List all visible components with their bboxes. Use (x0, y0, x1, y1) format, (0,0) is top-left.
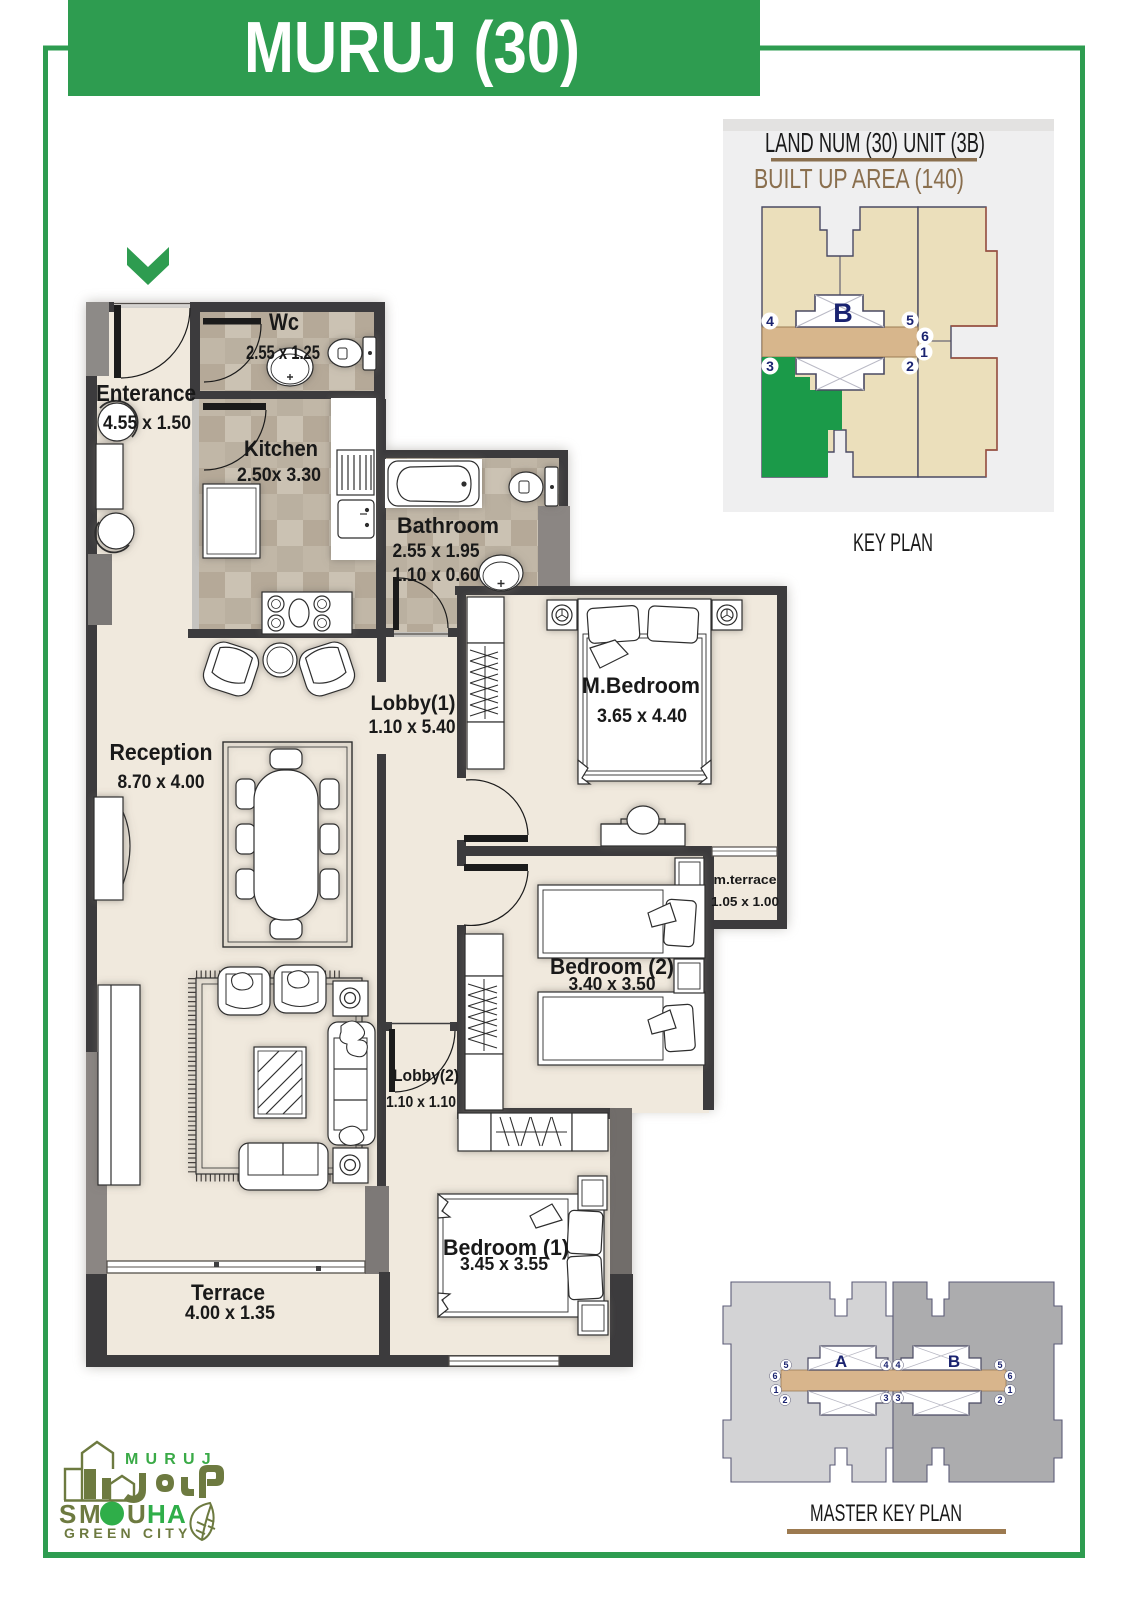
svg-text:6: 6 (772, 1371, 777, 1381)
svg-text:BUILT UP AREA (140): BUILT UP AREA (140) (754, 163, 964, 194)
svg-text:3: 3 (766, 358, 774, 374)
svg-text:Enterance: Enterance (96, 380, 196, 406)
svg-text:5: 5 (783, 1360, 788, 1370)
svg-text:1.10 x 5.40: 1.10 x 5.40 (369, 717, 456, 738)
svg-text:Lobby(2): Lobby(2) (393, 1066, 459, 1085)
svg-text:1.10 x 1.10: 1.10 x 1.10 (386, 1094, 456, 1111)
svg-text:1: 1 (773, 1385, 778, 1395)
svg-text:8.70 x 4.00: 8.70 x 4.00 (118, 772, 205, 793)
svg-text:Reception: Reception (110, 739, 213, 765)
svg-text:m.terrace: m.terrace (714, 872, 777, 887)
svg-text:MASTER KEY PLAN: MASTER KEY PLAN (810, 1500, 962, 1527)
svg-text:1: 1 (1007, 1385, 1012, 1395)
svg-text:MURUJ (30): MURUJ (30) (244, 8, 580, 88)
svg-text:1.05 x 1.00: 1.05 x 1.00 (711, 894, 779, 909)
svg-text:2.55 x 1.95: 2.55 x 1.95 (393, 541, 480, 562)
svg-text:1: 1 (920, 344, 928, 360)
svg-text:Bathroom: Bathroom (397, 513, 499, 538)
svg-text:3.65 x 4.40: 3.65 x 4.40 (597, 706, 687, 727)
svg-text:2: 2 (997, 1395, 1002, 1405)
svg-text:5: 5 (997, 1360, 1002, 1370)
svg-text:LAND NUM (30) UNIT (3B): LAND NUM (30) UNIT (3B) (765, 127, 985, 158)
svg-text:3.40 x 3.50: 3.40 x 3.50 (569, 974, 656, 994)
svg-text:KEY PLAN: KEY PLAN (853, 529, 933, 557)
svg-text:4.55 x 1.50: 4.55 x 1.50 (103, 413, 191, 434)
svg-text:5: 5 (906, 312, 914, 328)
svg-text:3.45 x 3.55: 3.45 x 3.55 (460, 1254, 548, 1274)
svg-text:4: 4 (766, 313, 774, 329)
svg-text:2.55 x 1.25: 2.55 x 1.25 (246, 343, 320, 364)
svg-text:Lobby(1): Lobby(1) (371, 692, 456, 715)
svg-text:4: 4 (883, 1360, 888, 1370)
svg-text:GREEN CITY: GREEN CITY (64, 1525, 192, 1541)
svg-text:B: B (948, 1352, 960, 1371)
svg-text:3: 3 (883, 1393, 888, 1403)
svg-text:4.00 x 1.35: 4.00 x 1.35 (185, 1303, 275, 1324)
svg-text:4: 4 (895, 1360, 900, 1370)
svg-text:2.50x 3.30: 2.50x 3.30 (237, 465, 321, 486)
svg-text:B: B (833, 298, 853, 328)
svg-text:Kitchen: Kitchen (244, 436, 318, 461)
svg-text:M.Bedroom: M.Bedroom (582, 673, 700, 698)
svg-text:3: 3 (895, 1393, 900, 1403)
svg-text:1.10 x 0.60: 1.10 x 0.60 (393, 565, 480, 586)
svg-text:6: 6 (1007, 1371, 1012, 1381)
svg-text:2: 2 (782, 1395, 787, 1405)
svg-text:Wc: Wc (269, 309, 299, 336)
svg-text:Terrace: Terrace (191, 1280, 265, 1305)
svg-text:MURUJ: MURUJ (125, 1451, 218, 1468)
svg-text:2: 2 (906, 358, 914, 374)
svg-text:A: A (835, 1352, 847, 1371)
svg-text:6: 6 (921, 328, 929, 344)
